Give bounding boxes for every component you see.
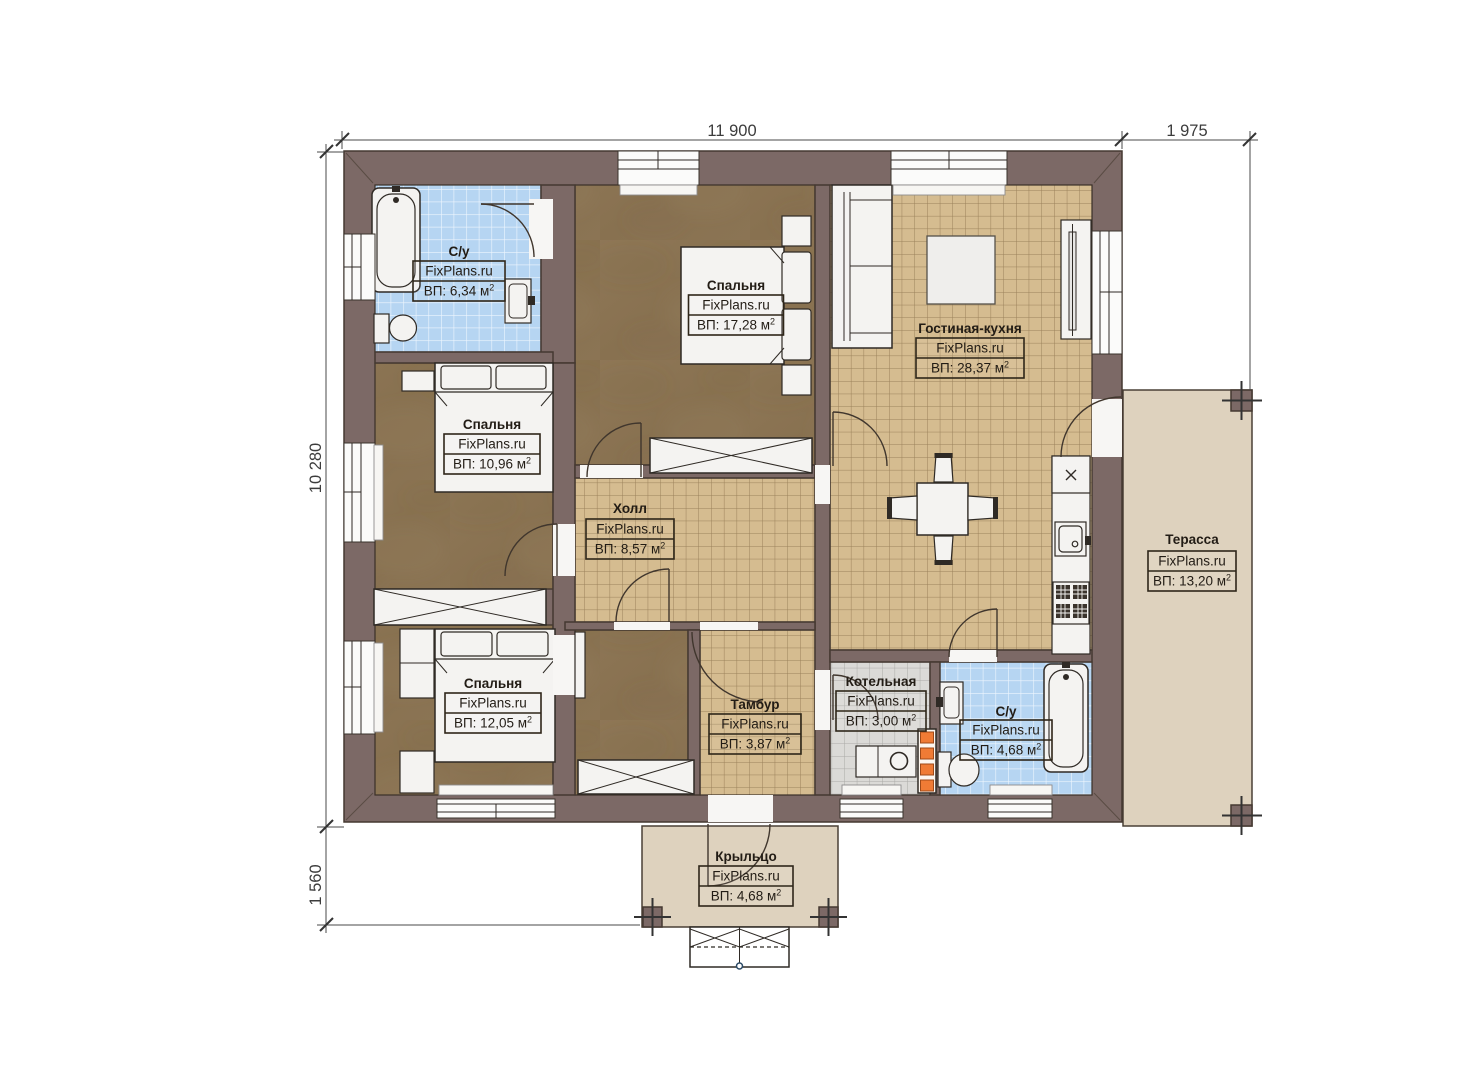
svg-text:ВП: 10,96 м2: ВП: 10,96 м2: [453, 456, 531, 472]
svg-text:FixPlans.ru: FixPlans.ru: [459, 696, 527, 711]
svg-text:Тамбур: Тамбур: [731, 697, 780, 712]
svg-text:Гостиная-кухня: Гостиная-кухня: [918, 321, 1021, 336]
svg-text:ВП: 12,05 м2: ВП: 12,05 м2: [454, 715, 532, 731]
svg-text:Спальня: Спальня: [707, 278, 765, 293]
svg-text:ВП: 13,20 м2: ВП: 13,20 м2: [1153, 573, 1231, 589]
svg-text:Холл: Холл: [613, 501, 647, 516]
svg-text:ВП: 8,57 м2: ВП: 8,57 м2: [595, 541, 666, 557]
svg-text:ВП: 4,68 м2: ВП: 4,68 м2: [971, 742, 1042, 758]
svg-text:ВП: 28,37 м2: ВП: 28,37 м2: [931, 360, 1009, 376]
svg-text:11 900: 11 900: [707, 122, 756, 140]
svg-text:FixPlans.ru: FixPlans.ru: [712, 869, 780, 884]
svg-text:С/у: С/у: [448, 244, 470, 259]
svg-text:Спальня: Спальня: [463, 417, 521, 432]
svg-text:ВП: 3,00 м2: ВП: 3,00 м2: [846, 713, 917, 729]
svg-text:FixPlans.ru: FixPlans.ru: [936, 341, 1004, 356]
svg-text:10 280: 10 280: [307, 443, 325, 493]
svg-text:FixPlans.ru: FixPlans.ru: [721, 717, 789, 732]
svg-text:FixPlans.ru: FixPlans.ru: [596, 522, 664, 537]
svg-text:Спальня: Спальня: [464, 676, 522, 691]
svg-text:FixPlans.ru: FixPlans.ru: [702, 298, 770, 313]
svg-text:FixPlans.ru: FixPlans.ru: [458, 437, 526, 452]
svg-text:1 975: 1 975: [1166, 122, 1207, 140]
svg-text:ВП: 3,87 м2: ВП: 3,87 м2: [720, 736, 791, 752]
svg-text:ВП: 6,34 м2: ВП: 6,34 м2: [424, 283, 495, 299]
svg-text:FixPlans.ru: FixPlans.ru: [972, 723, 1040, 738]
svg-text:ВП: 4,68 м2: ВП: 4,68 м2: [711, 888, 782, 904]
svg-text:ВП: 17,28 м2: ВП: 17,28 м2: [697, 317, 775, 333]
svg-text:С/у: С/у: [995, 704, 1017, 719]
svg-text:Котельная: Котельная: [846, 674, 917, 689]
svg-text:Терасса: Терасса: [1165, 532, 1219, 547]
svg-text:1 560: 1 560: [307, 864, 325, 905]
svg-text:FixPlans.ru: FixPlans.ru: [1158, 554, 1226, 569]
svg-text:Крыльцо: Крыльцо: [715, 849, 776, 864]
svg-text:FixPlans.ru: FixPlans.ru: [847, 694, 915, 709]
svg-text:FixPlans.ru: FixPlans.ru: [425, 264, 493, 279]
